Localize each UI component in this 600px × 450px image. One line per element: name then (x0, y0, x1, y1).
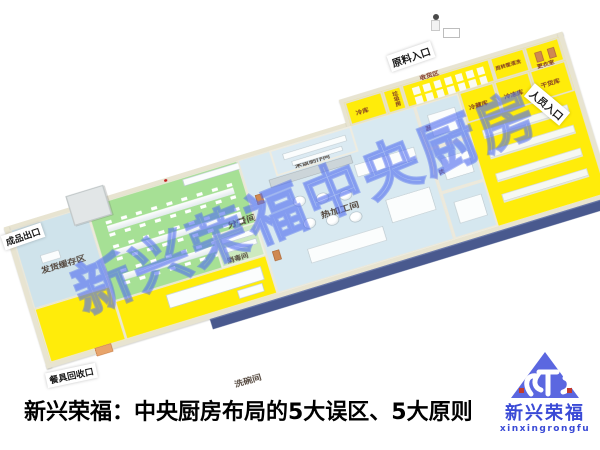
work-table (440, 150, 474, 180)
work-island (354, 147, 418, 178)
entrance-tag-raw-material: 原料入口 (386, 41, 435, 72)
work-island (385, 187, 436, 223)
work-island (307, 226, 387, 263)
cooking-kettle (291, 194, 307, 208)
room-label-dry-goods: 干货库 (540, 76, 561, 89)
logo-triangle-icon (509, 350, 581, 400)
work-table (427, 107, 461, 137)
kitchen-layout-illustration: 发货缓存区 洗碗间 分餐间 消毒间 二次更衣 热加工间 (0, 0, 600, 450)
work-table (454, 194, 488, 224)
room-label-freezer: 冷冻库 (503, 87, 524, 100)
door (547, 47, 557, 59)
logo-latin-name: xinxingrongfu (496, 424, 594, 435)
cooking-kettle (302, 216, 318, 230)
door (534, 51, 544, 63)
door (255, 193, 265, 205)
room-label-dishwashing: 洗碗间 (233, 371, 263, 389)
room-label-basket-wash: 周转筐清洗 (495, 58, 522, 71)
room-label-cold-store: 冷库 (355, 105, 370, 117)
page-title: 新兴荣福：中央厨房布局的5大误区、5大原则 (24, 394, 473, 426)
door (272, 249, 282, 261)
cooking-kettle (315, 191, 331, 205)
floor-plan-3d: 发货缓存区 洗碗间 分餐间 消毒间 二次更衣 热加工间 (10, 60, 600, 363)
room-label-cold-storage: 冷藏库 (468, 98, 489, 111)
company-logo: 新兴荣福 xinxingrongfu (496, 350, 594, 435)
worker-cart (443, 28, 460, 38)
room-label-garbage: 垃圾房 (390, 90, 403, 108)
worker-figure-body (431, 20, 440, 31)
logo-chinese-name: 新兴荣福 (496, 404, 594, 424)
